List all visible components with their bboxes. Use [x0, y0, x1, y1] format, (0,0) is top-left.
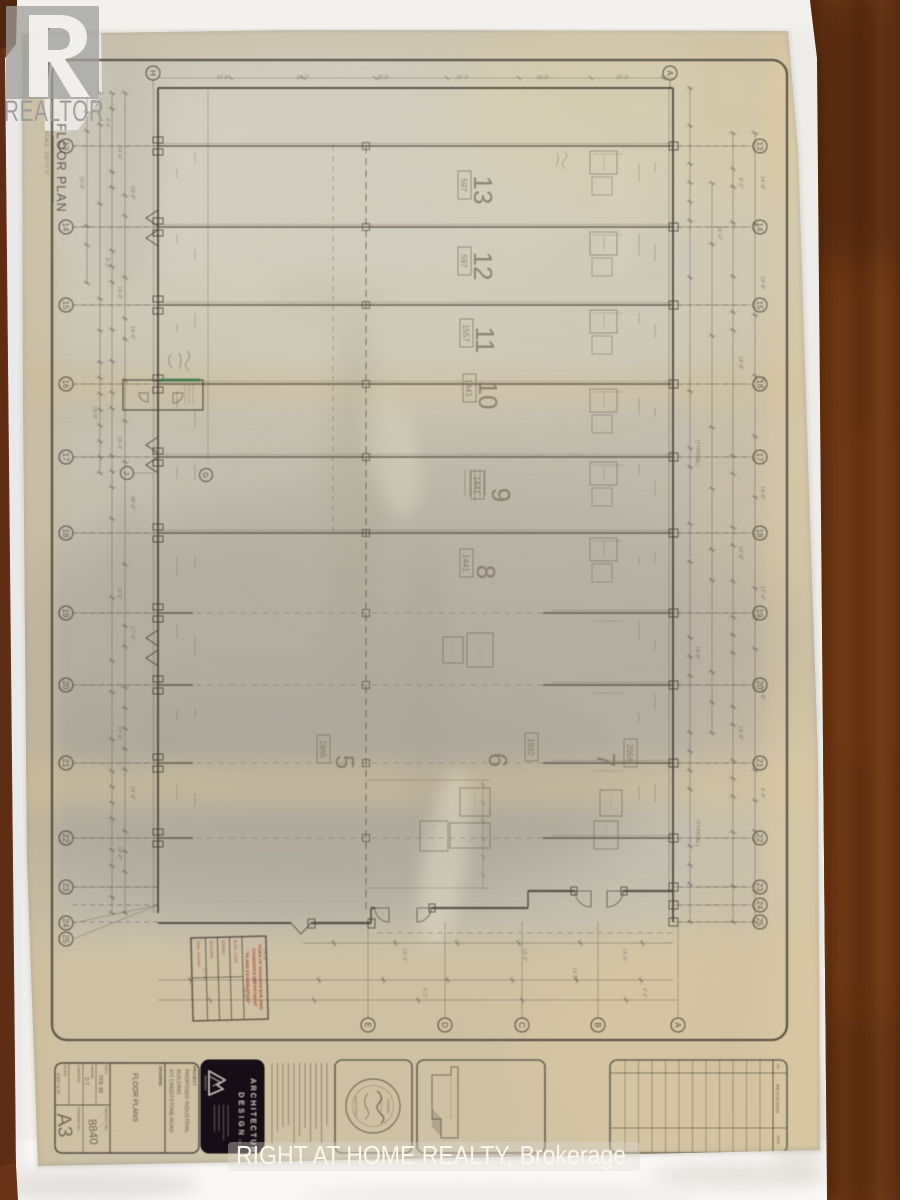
svg-text:FEB. 88: FEB. 88 [97, 1075, 103, 1093]
svg-text:13: 13 [755, 142, 764, 151]
svg-text:16'-4": 16'-4" [116, 436, 122, 449]
svg-text:19'-8": 19'-8" [129, 186, 135, 200]
svg-text:G: G [201, 472, 210, 478]
svg-text:16'-4": 16'-4" [759, 376, 765, 390]
svg-text:DATE: DATE [776, 1136, 780, 1146]
svg-text:®: ® [91, 97, 99, 109]
svg-text:9: 9 [486, 488, 516, 502]
svg-text:98'-6": 98'-6" [129, 496, 135, 510]
svg-text:14'-8": 14'-8" [759, 686, 765, 700]
svg-text:1557: 1557 [461, 324, 470, 342]
svg-text:B: B [593, 1022, 602, 1027]
svg-text:E: E [363, 1022, 372, 1027]
svg-text:DRAWN: DRAWN [90, 1065, 94, 1079]
svg-text:REVISIONS: REVISIONS [775, 1084, 780, 1114]
svg-text:19'-8": 19'-8" [521, 948, 527, 961]
svg-text:2956: 2956 [625, 744, 634, 762]
svg-text:13: 13 [468, 176, 498, 205]
svg-text:DESIGN: DESIGN [237, 1092, 246, 1138]
svg-text:17: 17 [755, 453, 764, 462]
svg-text:17: 17 [61, 453, 70, 462]
svg-text:A: A [665, 70, 674, 76]
svg-text:1992: 1992 [526, 738, 535, 756]
svg-text:4'-4": 4'-4" [759, 788, 765, 799]
svg-text:1441: 1441 [461, 554, 470, 572]
svg-text:471 CREDITSTONE ROAD: 471 CREDITSTONE ROAD [168, 1069, 174, 1133]
svg-text:8840: 8840 [85, 1119, 99, 1145]
svg-text:14: 14 [61, 223, 70, 232]
svg-text:PROPOSED INDUSTRIAL: PROPOSED INDUSTRIAL [183, 1069, 189, 1133]
svg-text:FLOOR PLAN: FLOOR PLAN [54, 123, 68, 212]
svg-text:14'-6": 14'-6" [129, 326, 135, 340]
svg-text:17'-0": 17'-0" [129, 626, 135, 640]
svg-text:12: 12 [468, 252, 498, 281]
svg-text:15: 15 [61, 301, 70, 310]
svg-text:(TYPICAL): (TYPICAL) [694, 440, 700, 467]
svg-text:A3: A3 [52, 1112, 76, 1138]
svg-text:J: J [122, 471, 131, 475]
svg-text:16'-4": 16'-4" [401, 948, 407, 961]
svg-text:22: 22 [61, 834, 70, 843]
svg-text:14'-8": 14'-8" [621, 948, 627, 961]
svg-text:ONTARIO: ONTARIO [386, 1099, 390, 1114]
svg-text:14'-8": 14'-8" [116, 146, 122, 159]
svg-text:BLDG. CODE: BLDG. CODE [233, 940, 238, 964]
svg-text:A: A [673, 1022, 682, 1028]
svg-text:D: D [440, 1022, 449, 1028]
svg-text:15: 15 [755, 301, 764, 310]
svg-text:PROJECT: PROJECT [192, 1066, 197, 1086]
svg-text:22: 22 [755, 834, 764, 843]
svg-text:21: 21 [755, 759, 764, 768]
svg-text:14'-8": 14'-8" [91, 406, 97, 419]
svg-text:BUILDING: BUILDING [175, 1069, 181, 1094]
svg-text:18: 18 [61, 529, 70, 538]
svg-text:SCALE : 1/16"=1'-0": SCALE : 1/16"=1'-0" [43, 131, 49, 176]
svg-text:17'-4": 17'-4" [116, 726, 122, 739]
svg-text:16: 16 [61, 380, 70, 389]
svg-text:17'-4": 17'-4" [759, 586, 765, 600]
svg-text:20: 20 [61, 681, 70, 690]
svg-text:14'-8": 14'-8" [759, 486, 765, 500]
svg-text:24: 24 [61, 919, 70, 928]
svg-text:CHECKED: CHECKED [77, 1065, 81, 1083]
svg-text:C: C [517, 1022, 526, 1028]
svg-text:597: 597 [459, 254, 468, 268]
svg-text:14'-8": 14'-8" [571, 967, 577, 980]
svg-text:RIGHT AT HOME REALTY, Brokerag: RIGHT AT HOME REALTY, Brokerage [236, 1142, 626, 1170]
svg-text:8'-2": 8'-2" [737, 178, 743, 189]
svg-text:24: 24 [755, 901, 764, 910]
svg-text:6: 6 [483, 753, 513, 767]
svg-text:14'-8": 14'-8" [116, 846, 122, 859]
svg-text:21: 21 [61, 759, 70, 768]
svg-text:23: 23 [61, 883, 70, 892]
svg-text:OF ARCHITECTS: OF ARCHITECTS [379, 1096, 383, 1117]
svg-text:REALTOR: REALTOR [4, 95, 105, 128]
svg-text:14'-8": 14'-8" [737, 356, 743, 370]
svg-text:14'-8": 14'-8" [694, 646, 700, 660]
svg-text:7: 7 [591, 753, 621, 767]
svg-text:DWG. SHOWN: DWG. SHOWN [196, 941, 201, 967]
svg-text:ARCHITECT: ARCHITECT [204, 1076, 208, 1091]
svg-text:14'-8": 14'-8" [129, 786, 135, 800]
svg-text:1/16"=1'-0": 1/16"=1'-0" [56, 1073, 61, 1095]
svg-text:8'-2": 8'-2" [421, 988, 427, 998]
svg-text:8: 8 [471, 565, 501, 579]
svg-text:4'-4": 4'-4" [641, 988, 647, 998]
svg-text:14'-8": 14'-8" [759, 176, 765, 190]
svg-text:19'-8": 19'-8" [759, 276, 765, 290]
svg-text:1965: 1965 [318, 740, 327, 758]
svg-text:19'-8": 19'-8" [737, 546, 743, 560]
svg-text:597: 597 [459, 178, 468, 192]
svg-text:(TYPICAL): (TYPICAL) [694, 820, 700, 847]
svg-text:19: 19 [61, 609, 70, 618]
svg-text:DATE: DATE [104, 1065, 108, 1075]
svg-text:19'-8": 19'-8" [78, 176, 84, 189]
svg-text:5: 5 [330, 755, 360, 769]
svg-text:DRAWING NO.: DRAWING NO. [77, 1107, 81, 1132]
svg-text:H: H [148, 70, 157, 76]
svg-text:1441: 1441 [464, 379, 473, 397]
svg-text:DRAWING: DRAWING [158, 1066, 163, 1086]
svg-text:8'-2": 8'-2" [104, 258, 110, 268]
svg-text:No.: No. [776, 1064, 780, 1069]
svg-text:16'-0": 16'-0" [716, 226, 722, 240]
svg-text:4'-4": 4'-4" [104, 118, 110, 128]
svg-text:10: 10 [473, 381, 503, 410]
svg-text:SCALE: SCALE [63, 1065, 67, 1077]
svg-text:11: 11 [470, 327, 500, 354]
svg-text:14'-8": 14'-8" [116, 586, 122, 599]
svg-text:BUILDING: BUILDING [209, 940, 213, 958]
svg-text:25: 25 [61, 935, 70, 944]
svg-text:14'-8": 14'-8" [737, 726, 743, 740]
svg-text:18: 18 [755, 529, 764, 538]
svg-text:ASSOCIATION: ASSOCIATION [354, 1096, 358, 1116]
svg-text:FLOOR PLANS: FLOOR PLANS [131, 1073, 138, 1122]
svg-text:ZONING: ZONING [221, 940, 225, 955]
svg-text:D.T.: D.T. [83, 1077, 89, 1086]
svg-text:19'-8": 19'-8" [116, 286, 122, 299]
svg-text:19: 19 [755, 609, 764, 618]
svg-text:23: 23 [755, 883, 764, 892]
